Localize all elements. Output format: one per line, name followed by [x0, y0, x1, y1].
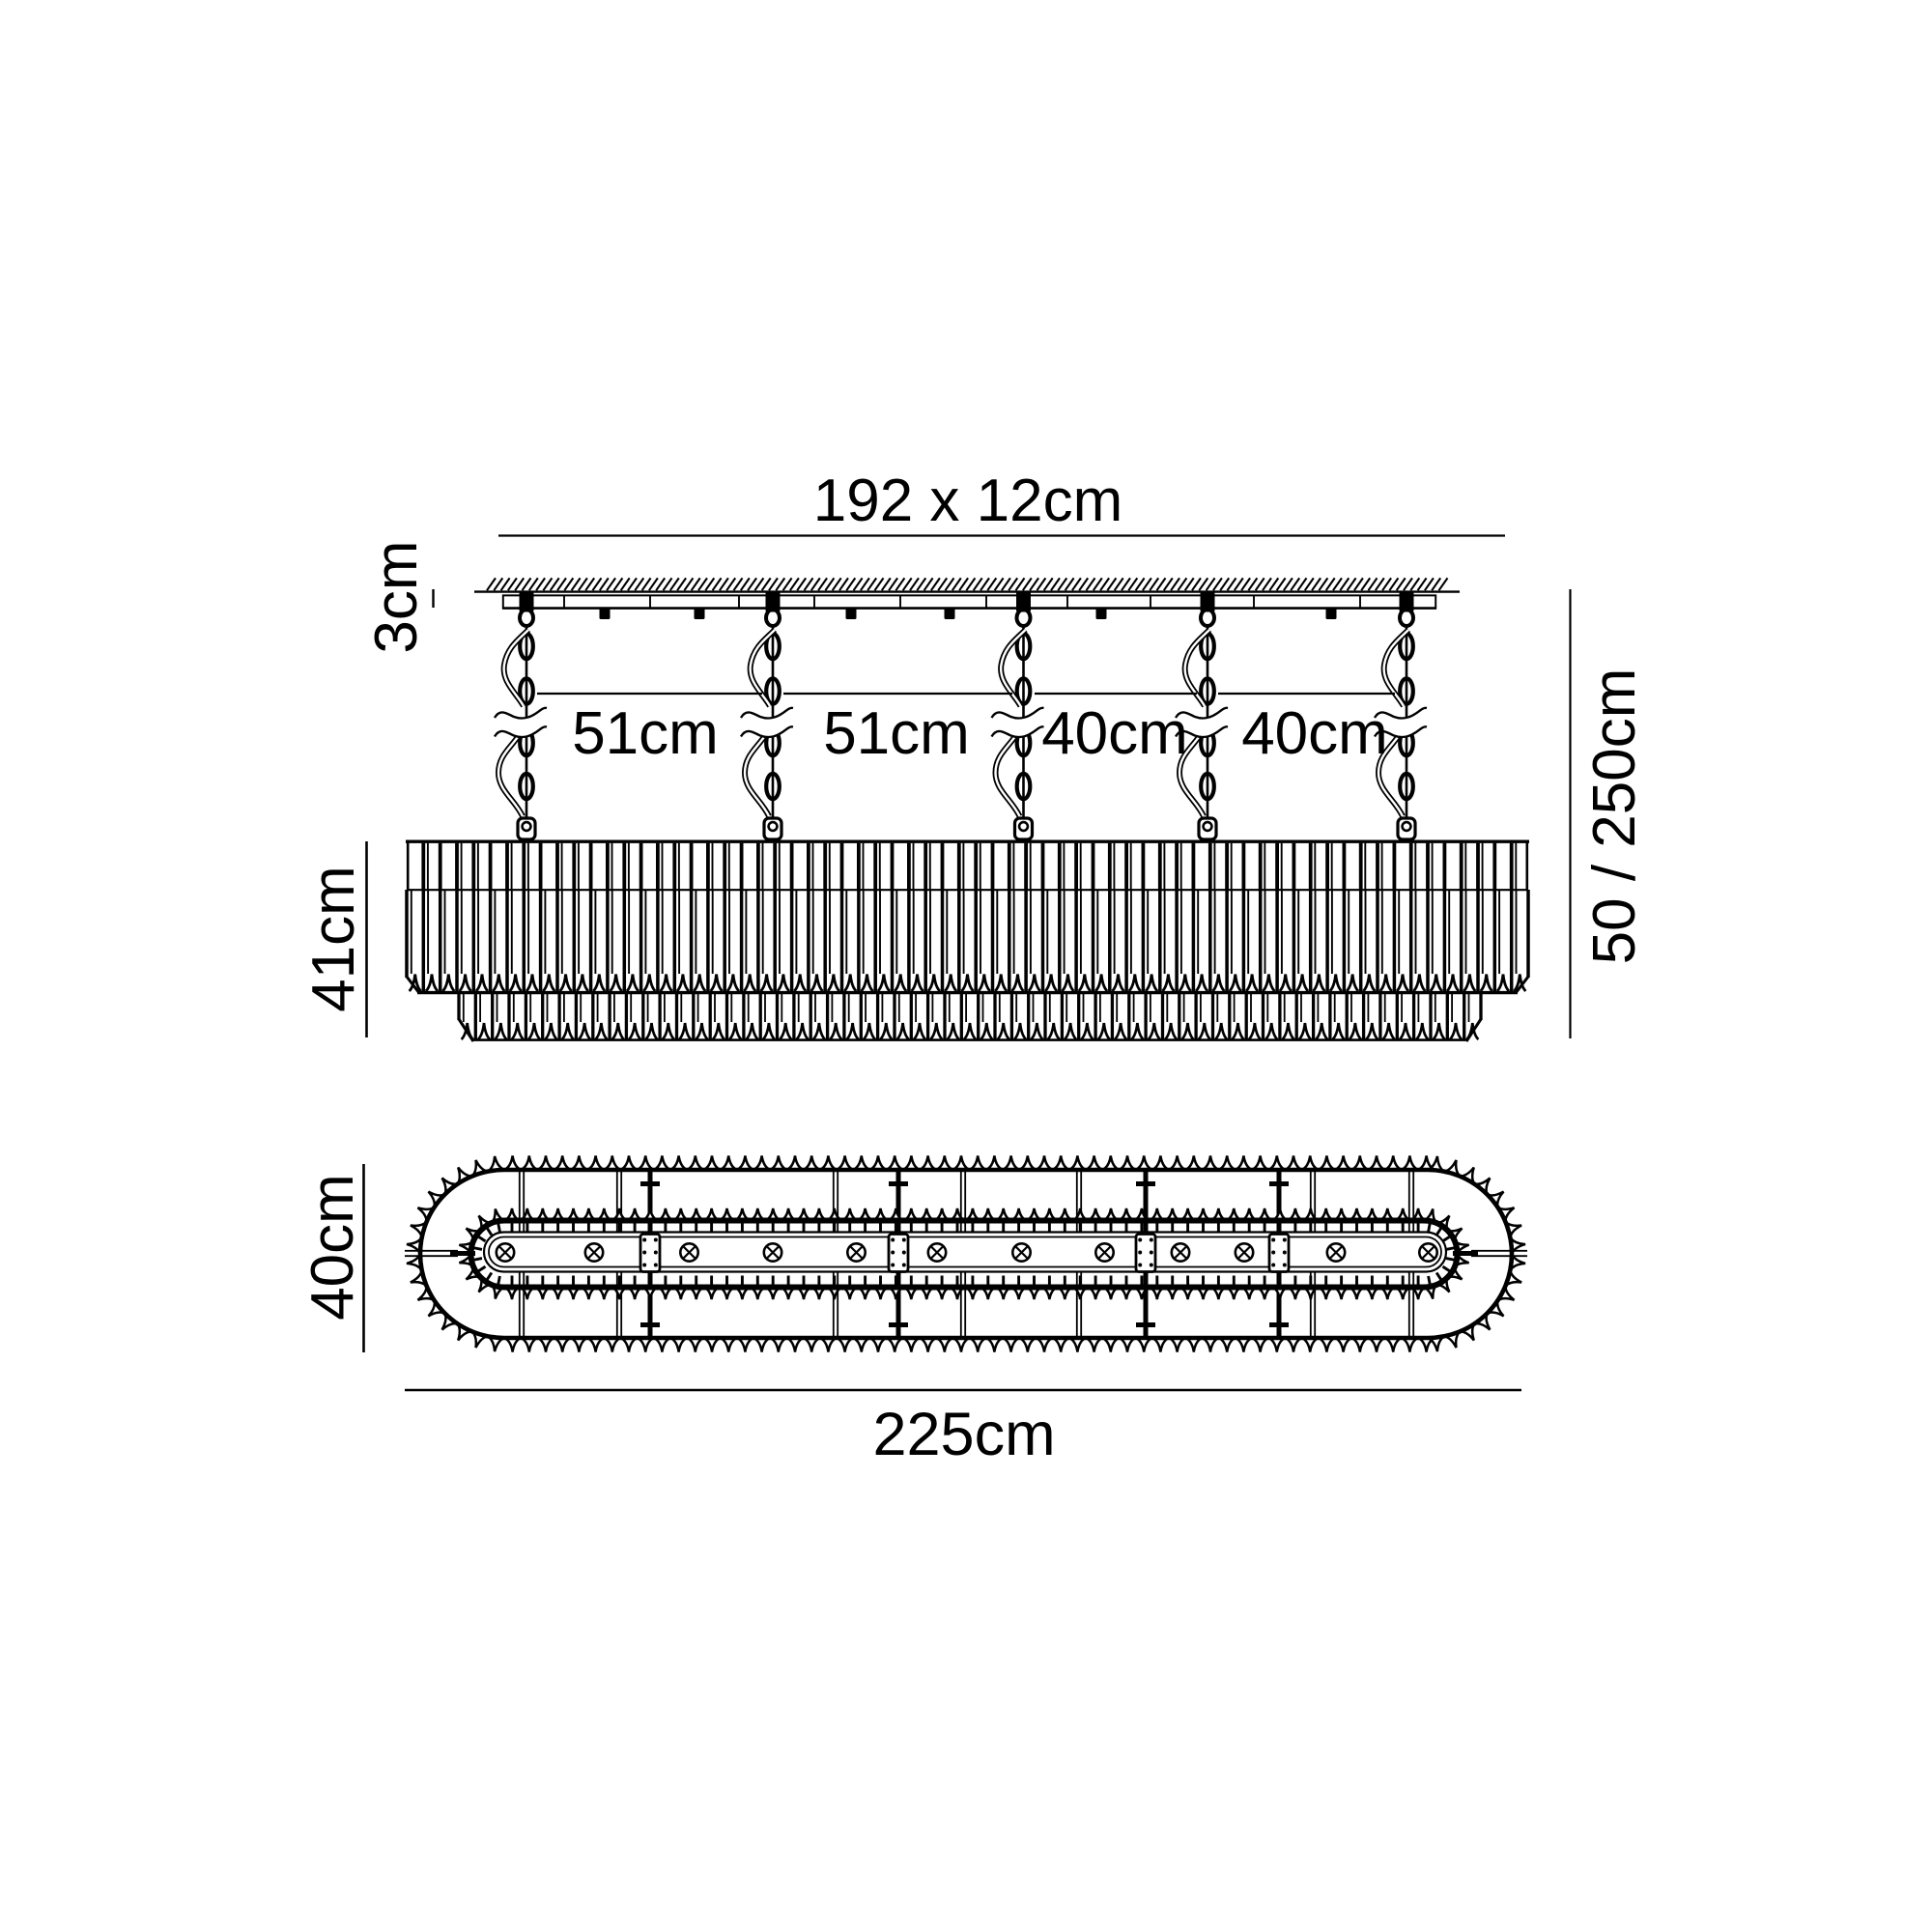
svg-text:51cm: 51cm — [823, 700, 970, 767]
svg-text:50 / 250cm: 50 / 250cm — [1581, 668, 1648, 965]
svg-text:40cm: 40cm — [1041, 700, 1188, 767]
svg-text:41cm: 41cm — [300, 866, 367, 1012]
svg-text:3cm: 3cm — [363, 540, 430, 653]
svg-text:40cm: 40cm — [299, 1174, 366, 1321]
svg-text:192 x 12cm: 192 x 12cm — [813, 468, 1123, 534]
svg-text:51cm: 51cm — [572, 700, 719, 767]
svg-text:225cm: 225cm — [872, 1401, 1055, 1468]
svg-text:40cm: 40cm — [1241, 700, 1388, 767]
